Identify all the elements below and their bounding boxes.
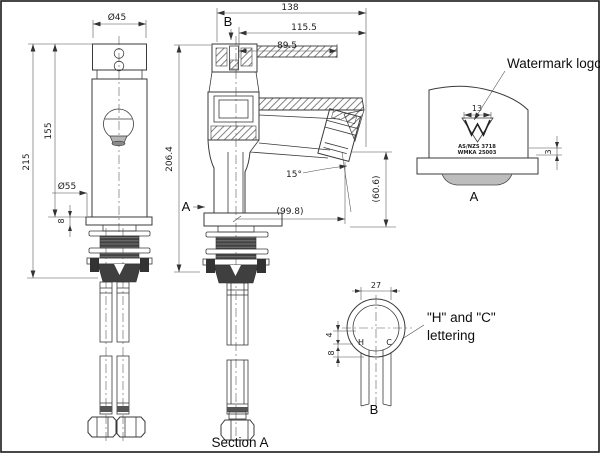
- spout-top-wall: [259, 98, 364, 110]
- dim-logo-width: 13: [472, 104, 482, 113]
- hose-crimp-left: [100, 406, 112, 412]
- threaded-shank: [216, 237, 256, 249]
- threaded-shank: [100, 236, 139, 248]
- bracket-bolt-left: [206, 259, 215, 273]
- dim-spout-angle: 15°: [286, 170, 302, 180]
- watermark-callout: Watermark logo: [507, 56, 600, 71]
- dim-logo-depth: 3: [544, 149, 553, 154]
- detail-b-label: B: [370, 402, 379, 417]
- threaded-shank-2: [216, 254, 256, 259]
- lettering-callout-line2: lettering: [427, 328, 475, 343]
- cap-wall-right: [241, 48, 252, 66]
- dim-offset-bottom: 8: [327, 350, 336, 355]
- pipe-crimp: [227, 407, 248, 412]
- cert-text-line2: WMKA 25003: [458, 150, 497, 156]
- cold-letter: C: [386, 338, 392, 347]
- bracket-bolt-right: [140, 258, 149, 272]
- dim-pipe-diameter: 27: [371, 281, 381, 290]
- dim-offset-top: 4: [325, 332, 334, 337]
- threaded-shank-2: [100, 253, 139, 258]
- dim-front-total-height: 215: [22, 153, 32, 170]
- aerator-outlet: [112, 141, 125, 146]
- cap-wall-left: [216, 48, 227, 66]
- dim-outlet-height: (60.6): [372, 175, 382, 202]
- faucet-engineering-drawing: Ø45 155 215 Ø55 8: [0, 0, 600, 453]
- screw-section: [230, 60, 238, 69]
- bracket-bolt-right: [257, 259, 266, 273]
- section-marker-a: A: [182, 199, 191, 214]
- dim-front-base-thickness: 8: [57, 218, 66, 223]
- hot-letter: H: [358, 338, 364, 347]
- base-underside: [442, 174, 512, 185]
- lettering-callout-line1: "H" and "C": [427, 310, 496, 325]
- dim-front-top-diameter: Ø45: [108, 12, 127, 23]
- dim-section-height: 206.4: [165, 146, 175, 172]
- dim-section-width-total: 138: [281, 3, 298, 13]
- hose-crimp-right: [117, 406, 129, 412]
- dim-section-width-lever: 89.5: [277, 41, 297, 51]
- bracket-bolt-left: [90, 258, 99, 272]
- section-marker-b: B: [224, 14, 233, 29]
- dim-spout-reach: (99.8): [276, 207, 303, 217]
- body-section-hatch: [211, 126, 256, 140]
- technical-drawing-page: Ø45 155 215 Ø55 8: [0, 0, 600, 453]
- dim-front-base-diameter: Ø55: [58, 181, 77, 192]
- dim-section-width-upper: 115.5: [291, 23, 317, 33]
- section-caption: Section A: [211, 435, 268, 450]
- detail-a-label: A: [470, 189, 479, 204]
- dim-front-body-height: 155: [44, 122, 54, 139]
